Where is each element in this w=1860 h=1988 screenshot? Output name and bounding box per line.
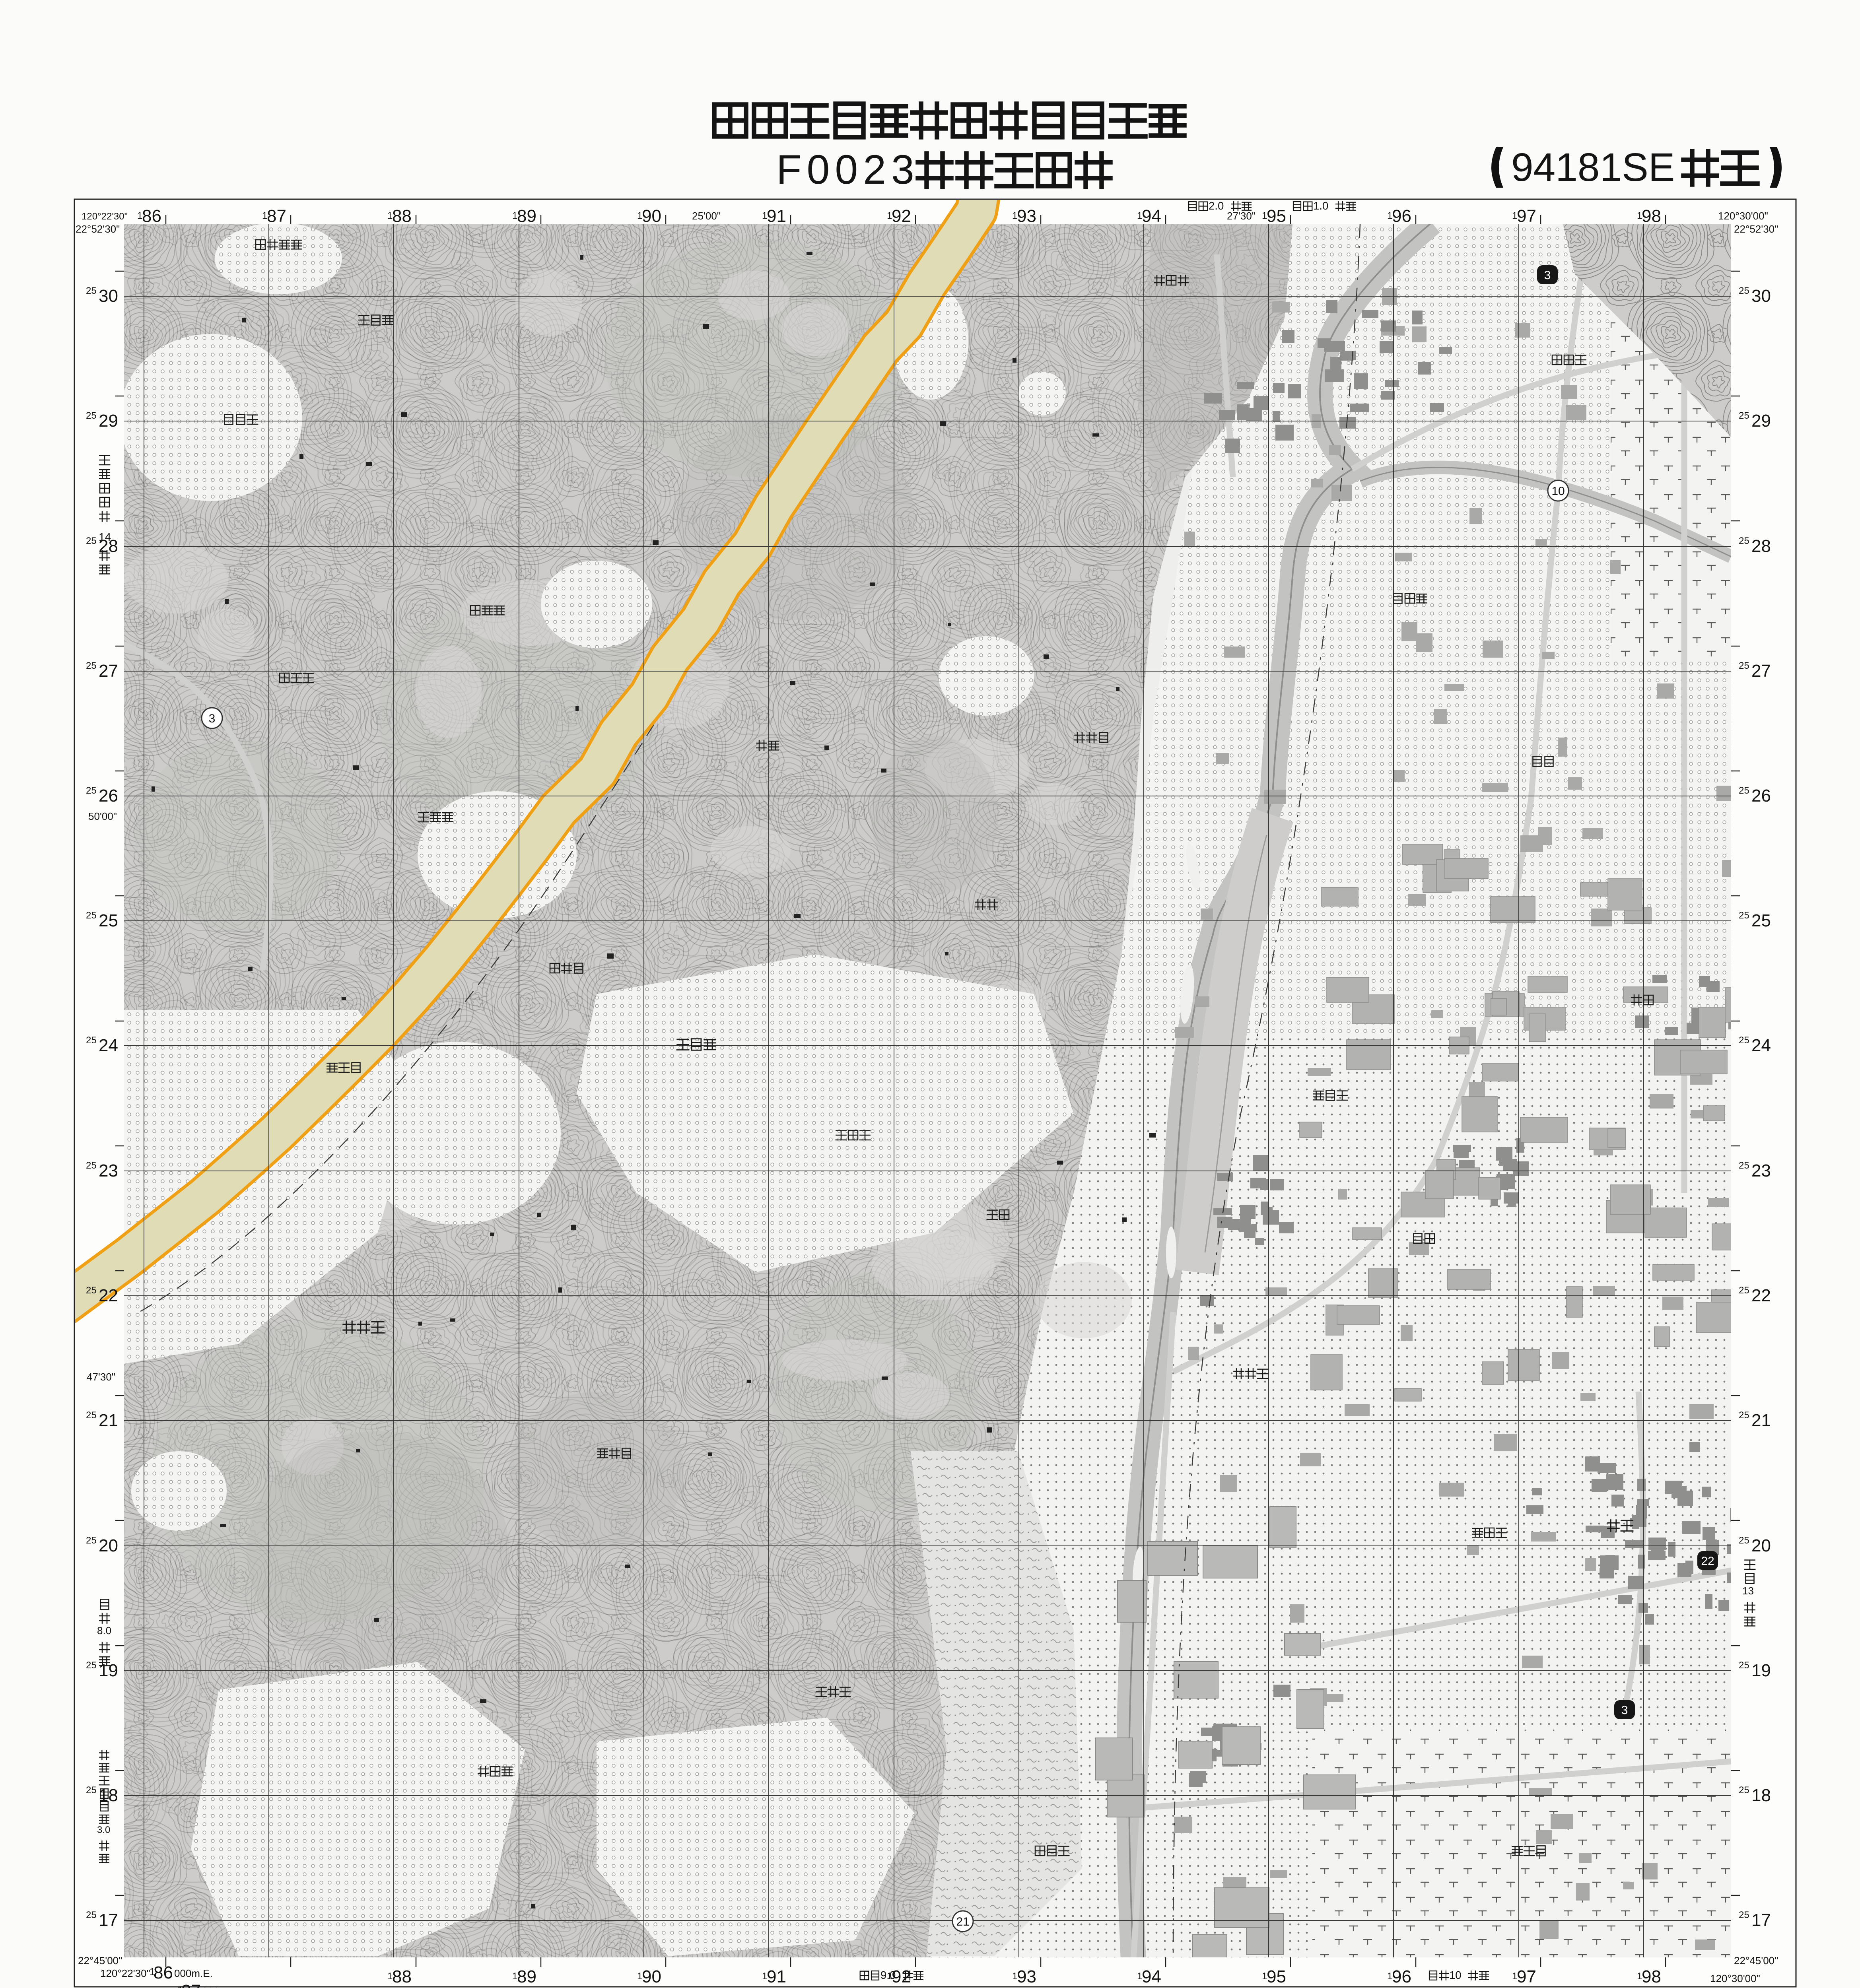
svg-text:25: 25 — [86, 1535, 97, 1546]
svg-text:000m.E.: 000m.E. — [202, 1986, 241, 1988]
svg-text:96: 96 — [1392, 1967, 1411, 1986]
svg-text:19: 19 — [1751, 1661, 1771, 1680]
svg-text:22: 22 — [1701, 1555, 1714, 1568]
svg-text:25: 25 — [1739, 910, 1749, 921]
svg-text:93: 93 — [1017, 206, 1036, 226]
svg-text:24: 24 — [99, 1036, 118, 1055]
svg-text:28: 28 — [1751, 536, 1771, 556]
svg-text:97: 97 — [1517, 1967, 1536, 1986]
svg-text:95: 95 — [1267, 1967, 1286, 1986]
svg-text:25: 25 — [86, 536, 97, 546]
svg-text:10: 10 — [1551, 485, 1565, 498]
svg-text:22: 22 — [99, 1286, 118, 1305]
svg-text:21: 21 — [1751, 1411, 1771, 1430]
svg-text:29: 29 — [1751, 411, 1771, 431]
svg-text:22°45'00": 22°45'00" — [78, 1955, 122, 1967]
svg-text:30: 30 — [1751, 286, 1771, 306]
svg-text:000m.E.: 000m.E. — [174, 1967, 213, 1979]
svg-text:13: 13 — [1742, 1585, 1754, 1597]
svg-text:27'30": 27'30" — [1227, 210, 1256, 222]
svg-text:47'30": 47'30" — [87, 1371, 115, 1383]
svg-text:89: 89 — [517, 1967, 536, 1986]
svg-text:92: 92 — [892, 206, 911, 226]
svg-text:27: 27 — [99, 661, 118, 681]
svg-text:94: 94 — [1142, 206, 1161, 226]
svg-text:29: 29 — [99, 411, 118, 431]
svg-text:3: 3 — [1544, 269, 1551, 282]
svg-text:25: 25 — [1739, 536, 1749, 546]
svg-text:120°22'30": 120°22'30" — [82, 211, 128, 222]
svg-text:9.0: 9.0 — [880, 1969, 896, 1981]
svg-text:91: 91 — [767, 206, 786, 226]
svg-text:25: 25 — [1739, 660, 1749, 671]
svg-text:22°52'30": 22°52'30" — [76, 223, 120, 235]
svg-text:30: 30 — [99, 286, 118, 306]
svg-text:25: 25 — [86, 1285, 97, 1296]
svg-text:25: 25 — [1751, 911, 1771, 930]
svg-text:25: 25 — [1739, 1535, 1749, 1546]
svg-text:3: 3 — [209, 712, 216, 725]
svg-text:22°52'30": 22°52'30" — [1734, 223, 1778, 235]
svg-text:88: 88 — [392, 1967, 412, 1986]
svg-text:25: 25 — [86, 1160, 97, 1171]
svg-text:93: 93 — [1017, 1967, 1036, 1986]
svg-text:17: 17 — [1751, 1910, 1771, 1930]
svg-text:25: 25 — [1739, 1035, 1749, 1046]
svg-text:25: 25 — [86, 1910, 97, 1920]
svg-text:22°45'00": 22°45'00" — [1734, 1955, 1778, 1967]
svg-text:86: 86 — [154, 1963, 173, 1982]
svg-text:3.0: 3.0 — [97, 1825, 110, 1835]
svg-text:98: 98 — [1642, 1967, 1661, 1986]
svg-text:25: 25 — [86, 1410, 97, 1421]
svg-text:18: 18 — [1751, 1786, 1771, 1805]
svg-text:96: 96 — [1392, 206, 1411, 226]
svg-text:25: 25 — [1739, 1285, 1749, 1296]
svg-text:8.0: 8.0 — [97, 1625, 111, 1637]
svg-text:98: 98 — [1642, 206, 1661, 226]
svg-text:25: 25 — [1739, 1910, 1749, 1920]
svg-text:89: 89 — [517, 206, 536, 226]
svg-text:25: 25 — [86, 285, 97, 296]
svg-text:86: 86 — [142, 206, 161, 226]
svg-text:120°22'30": 120°22'30" — [100, 1967, 150, 1979]
svg-text:22: 22 — [1751, 1286, 1771, 1305]
svg-text:95: 95 — [1267, 206, 1286, 226]
svg-text:F0023: F0023 — [776, 147, 919, 193]
svg-text:25: 25 — [1739, 1410, 1749, 1421]
svg-text:87: 87 — [181, 1981, 201, 1988]
svg-text:87: 87 — [267, 206, 286, 226]
svg-text:50'00": 50'00" — [88, 810, 117, 822]
svg-text:90: 90 — [642, 1967, 661, 1986]
svg-text:25: 25 — [1739, 1660, 1749, 1671]
svg-text:24: 24 — [1751, 1036, 1771, 1055]
svg-text:90: 90 — [642, 206, 661, 226]
svg-text:120°30'00": 120°30'00" — [1718, 210, 1768, 222]
svg-text:23: 23 — [99, 1161, 118, 1180]
svg-text:21: 21 — [956, 1915, 969, 1928]
svg-text:25: 25 — [86, 785, 97, 796]
svg-text:25: 25 — [86, 660, 97, 671]
svg-text:25: 25 — [99, 911, 118, 930]
svg-text:97: 97 — [1517, 206, 1536, 226]
svg-text:26: 26 — [1751, 786, 1771, 806]
svg-text:14: 14 — [99, 531, 111, 543]
svg-text:120°30'00": 120°30'00" — [1710, 1972, 1760, 1984]
svg-text:94181SE: 94181SE — [1511, 145, 1675, 190]
svg-text:25: 25 — [1739, 1785, 1749, 1796]
svg-text:25: 25 — [1739, 1160, 1749, 1171]
svg-text:25: 25 — [1739, 285, 1749, 296]
svg-text:25'00": 25'00" — [692, 210, 721, 222]
svg-text:2.0: 2.0 — [1209, 200, 1224, 212]
svg-text:25: 25 — [86, 410, 97, 421]
svg-text:1.0: 1.0 — [1313, 200, 1328, 212]
svg-text:25: 25 — [86, 1785, 97, 1796]
svg-text:25: 25 — [86, 1035, 97, 1046]
svg-text:10: 10 — [1449, 1969, 1462, 1981]
svg-text:20: 20 — [99, 1536, 118, 1555]
svg-text:88: 88 — [392, 206, 412, 226]
svg-text:25: 25 — [86, 1660, 97, 1671]
svg-text:25: 25 — [1739, 410, 1749, 421]
svg-text:91: 91 — [767, 1967, 786, 1986]
svg-text:3: 3 — [1621, 1704, 1628, 1717]
svg-text:94: 94 — [1142, 1967, 1161, 1986]
svg-text:27: 27 — [1751, 661, 1771, 681]
svg-text:17: 17 — [99, 1910, 118, 1930]
svg-text:25: 25 — [1739, 785, 1749, 796]
svg-text:26: 26 — [99, 786, 118, 806]
svg-text:23: 23 — [1751, 1161, 1771, 1180]
svg-text:19: 19 — [99, 1661, 118, 1680]
svg-text:25: 25 — [86, 910, 97, 921]
svg-text:21: 21 — [99, 1411, 118, 1430]
svg-text:20: 20 — [1751, 1536, 1771, 1555]
